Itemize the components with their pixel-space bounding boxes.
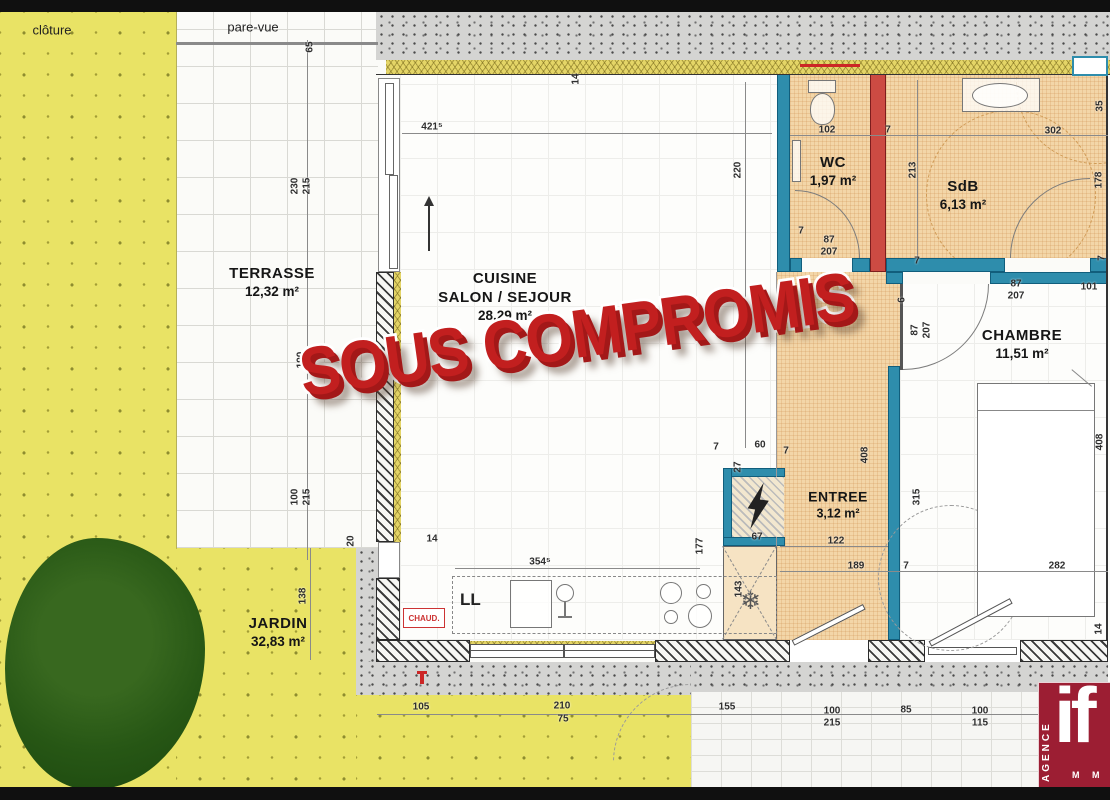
bed-pillow-line <box>978 410 1094 411</box>
burner-icon-3 <box>664 610 678 624</box>
burner-icon-4 <box>688 604 712 628</box>
sdb-top-window <box>1072 56 1108 76</box>
wall-chambre-top-stub <box>886 272 903 284</box>
dim-label: 421⁵ <box>421 122 442 133</box>
dim-label: 87 <box>1010 279 1021 290</box>
terrasse-name: TERRASSE <box>229 265 315 284</box>
west-wall-insulation <box>394 272 401 542</box>
sdb-area: 6,13 m² <box>940 197 987 214</box>
sink-stem <box>564 602 566 616</box>
top-wall-inner-line <box>376 74 1110 75</box>
dim-label: 100 <box>290 489 301 506</box>
jardin-area: 32,83 m² <box>249 634 308 651</box>
dim-label: 105 <box>413 702 430 713</box>
wc-name: WC <box>810 154 857 173</box>
dim-label: 20 <box>346 535 357 546</box>
entree-area: 3,12 m² <box>808 506 868 522</box>
bay-panel-1 <box>385 83 394 175</box>
wc-shelf <box>792 140 801 182</box>
dim-line-jardin-v <box>310 548 311 660</box>
toilet-tank-icon <box>808 80 836 93</box>
entry-arrow-head <box>424 196 434 206</box>
dim-label: 101 <box>1081 282 1098 293</box>
terrasse-area: 12,32 m² <box>229 284 315 301</box>
washer-label: LL <box>460 590 481 610</box>
top-exterior-wall <box>376 12 1110 60</box>
survey-marker-bar <box>417 671 427 674</box>
dim-label: 215 <box>302 178 313 195</box>
floor-plan-page: { "stamp": { "text": "SOUS COMPROMIS" },… <box>0 0 1110 800</box>
top-frame-bar <box>0 0 1110 12</box>
dim-label: 178 <box>1094 172 1105 189</box>
dim-label: 122 <box>828 536 845 547</box>
dim-label: 35 <box>1095 100 1106 111</box>
dim-label: 220 <box>733 162 744 179</box>
west-wall-hatch <box>376 272 394 542</box>
dim-label: 27 <box>733 461 744 472</box>
dim-label: 177 <box>695 538 706 555</box>
dim-label: 6 <box>897 297 908 303</box>
bottom-hatch-4 <box>1020 640 1108 662</box>
entree-name: ENTREE <box>808 488 868 506</box>
dim-label: 213 <box>908 162 919 179</box>
bottom-hatch-3 <box>868 640 925 662</box>
burner-icon-2 <box>696 584 711 599</box>
bottom-hatch-2 <box>655 640 790 662</box>
dim-label: 315 <box>912 489 923 506</box>
entree-door-opening <box>790 640 868 662</box>
dim-label: 65 <box>305 41 316 52</box>
sdb-name: SdB <box>940 178 987 197</box>
bottom-frame-bar <box>0 787 1110 800</box>
dim-label: 7 <box>885 125 891 136</box>
dim-line-bottom <box>377 714 1108 715</box>
cuisine-name: CUISINE <box>438 270 572 289</box>
bay-panel-2 <box>389 175 398 269</box>
dim-label: 408 <box>1095 434 1106 451</box>
pare-vue-fence-line <box>176 42 378 45</box>
dim-label: 7 <box>798 226 804 237</box>
jardin-label: JARDIN 32,83 m² <box>249 615 308 651</box>
wall-red-wc-sdb <box>870 74 886 272</box>
dim-label: 230 <box>290 178 301 195</box>
dim-line-220 <box>745 82 746 448</box>
chambre-name: CHAMBRE <box>982 327 1062 346</box>
dim-label: 408 <box>860 447 871 464</box>
dim-label: 210 <box>554 701 571 712</box>
dim-label: 302 <box>1045 126 1062 137</box>
wall-wc-bottom-b <box>852 258 870 272</box>
boiler-label: CHAUD. <box>408 614 439 623</box>
dim-label: 282 <box>1049 561 1066 572</box>
bed-icon <box>977 383 1095 617</box>
dim-label: 14 <box>1094 623 1105 634</box>
jardin-name: JARDIN <box>249 615 308 634</box>
toilet-bowl-icon <box>810 93 835 125</box>
right-exterior-edge <box>1106 74 1108 662</box>
dim-label: 14 <box>426 534 437 545</box>
dim-line-354 <box>455 568 700 569</box>
dim-label: 7 <box>783 446 789 457</box>
niche-wall-left <box>723 468 732 546</box>
dim-label: 7 <box>914 256 920 267</box>
dim-label: 215 <box>824 718 841 729</box>
bay-window <box>378 78 400 272</box>
sdb-door-arc <box>1010 178 1090 258</box>
dim-label: 87 <box>910 324 921 335</box>
dim-label: 60 <box>754 440 765 451</box>
dim-label: 143 <box>734 581 745 598</box>
wall-cuisine-wc <box>777 74 790 272</box>
sink-icon <box>556 584 574 602</box>
dim-label: 67 <box>751 532 762 543</box>
dim-label: 207 <box>821 247 838 258</box>
entree-label: ENTREE 3,12 m² <box>808 488 868 521</box>
dim-label: 189 <box>848 561 865 572</box>
dim-label: 7 <box>903 561 909 572</box>
agency-logo-sub: M M <box>1072 770 1105 780</box>
terrace-garden-border <box>176 12 177 548</box>
dim-label: 7 <box>713 442 719 453</box>
chambre-area: 11,51 m² <box>982 346 1062 363</box>
wc-label: WC 1,97 m² <box>810 154 857 190</box>
dim-label: 7 <box>1097 255 1108 261</box>
top-wall-insulation <box>386 60 1110 74</box>
agency-logo-brand: if <box>1054 670 1092 761</box>
cloture-label: clôture <box>32 23 71 38</box>
dim-label: 115 <box>972 718 988 729</box>
dim-label: 207 <box>922 322 933 339</box>
dim-label: 87 <box>823 235 834 246</box>
dim-label: 215 <box>302 489 313 506</box>
kitchen-counter <box>452 576 777 634</box>
pare-vue-label: pare-vue <box>227 20 278 35</box>
wall-sdb-bottom <box>886 258 1005 272</box>
dim-label: 102 <box>819 125 836 136</box>
dim-label: 100 <box>972 706 989 717</box>
agency-logo: AGENCE if M M <box>1038 682 1110 788</box>
dim-label: 138 <box>298 588 309 605</box>
cuisine-bottom-window <box>470 644 655 658</box>
dim-label: 100 <box>824 706 841 717</box>
chambre-label: CHAMBRE 11,51 m² <box>982 327 1062 363</box>
dim-label: 354⁵ <box>529 557 550 568</box>
entry-arrow-shaft <box>428 205 430 251</box>
dim-label: 85 <box>900 705 911 716</box>
dim-label: 14 <box>571 73 582 84</box>
garden-gate-arc <box>613 684 691 762</box>
west-low-window <box>378 542 400 578</box>
boiler-box: CHAUD. <box>403 608 445 628</box>
dim-line-cuisine-h <box>402 133 772 134</box>
kitchen-cabinet <box>510 580 552 628</box>
dim-label: 207 <box>1008 291 1025 302</box>
sdb-basin-icon <box>972 83 1028 108</box>
window-mullion <box>563 645 565 657</box>
burner-icon-1 <box>660 582 682 604</box>
west-wall-hatch-low <box>376 578 400 640</box>
dim-label: 75 <box>557 714 568 725</box>
wc-area: 1,97 m² <box>810 173 857 190</box>
wall-marker-red <box>800 64 860 67</box>
dim-label: 155 <box>719 702 736 713</box>
sdb-label: SdB 6,13 m² <box>940 178 987 214</box>
bottom-hatch-1 <box>376 640 470 662</box>
sink-base <box>558 616 572 618</box>
agency-logo-agence: AGENCE <box>1041 690 1052 782</box>
terrasse-label: TERRASSE 12,32 m² <box>229 265 315 301</box>
